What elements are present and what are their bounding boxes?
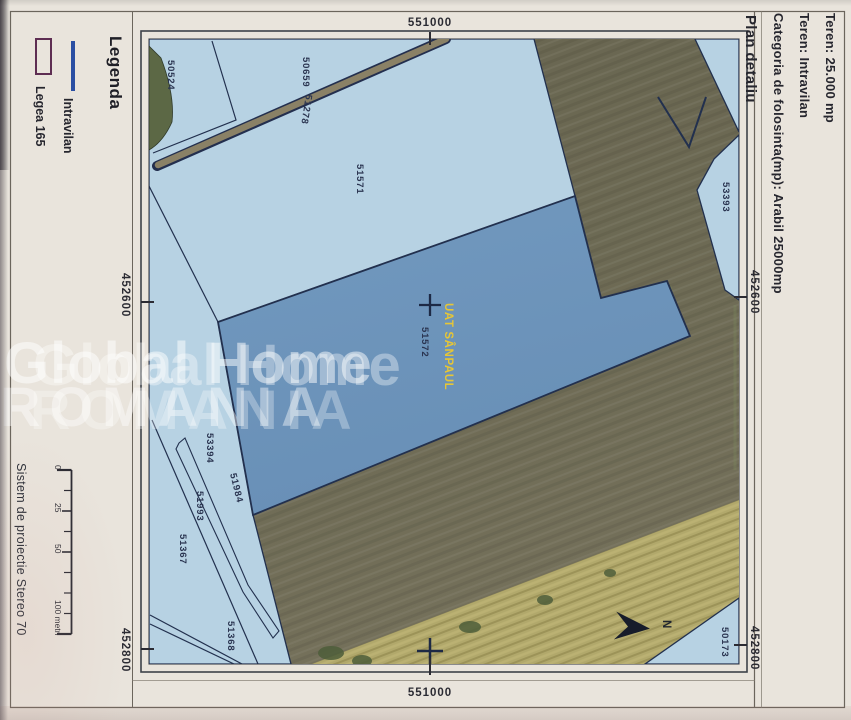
photo-pink-tint — [0, 430, 130, 720]
parcel-label-51993: 51993 — [194, 491, 205, 521]
parcel-label-51367: 51367 — [177, 534, 188, 564]
parcel-label-50173: 50173 — [719, 627, 730, 657]
parcel-label-53394: 53394 — [204, 433, 215, 463]
parcel-label-53393: 53393 — [720, 182, 731, 212]
scanned-cadastral-plan: 50524 50659 51278 51571 51572 53393 5339… — [0, 0, 851, 720]
uat-sanpaul-label: UAT SÂNPAUL — [442, 303, 455, 390]
title-plan-detaliu: Plan detaliu — [736, 13, 765, 703]
parcel-label-51571: 51571 — [354, 164, 365, 194]
grid-label-top: 551000 — [408, 17, 452, 29]
parcel-label-50659: 50659 — [300, 57, 311, 87]
legend-legea165-rect-swatch — [35, 38, 52, 75]
map-content: 50524 50659 51278 51571 51572 53393 5339… — [149, 39, 739, 667]
title-teren-area: Teren: 25.000 mp — [817, 13, 843, 703]
grid-label-bottom: 551000 — [408, 687, 452, 699]
legend-item-legea165: Legea 165 — [33, 86, 47, 146]
legend-item-intravilan: Intravilan — [61, 98, 75, 154]
title-block: Teren: 25.000 mp Teren: Intravilan Categ… — [736, 13, 843, 703]
grid-label-left-upper: 452600 — [119, 273, 131, 317]
parcel-label-50524: 50524 — [165, 60, 176, 90]
title-categoria: Categoria de folosinta(mp): Arabil 25000… — [765, 13, 791, 703]
legend-intravilan-line-swatch — [71, 41, 75, 91]
title-teren-intravilan: Teren: Intravilan — [791, 13, 817, 703]
parcel-label-51572: 51572 — [419, 327, 430, 357]
photo-edge-bottom — [0, 706, 851, 720]
north-label: N — [660, 620, 672, 628]
photo-edge-top — [0, 0, 851, 6]
photo-edge-corner — [0, 0, 10, 170]
legend-heading: Legenda — [105, 36, 125, 109]
parcel-label-51368: 51368 — [225, 621, 236, 651]
